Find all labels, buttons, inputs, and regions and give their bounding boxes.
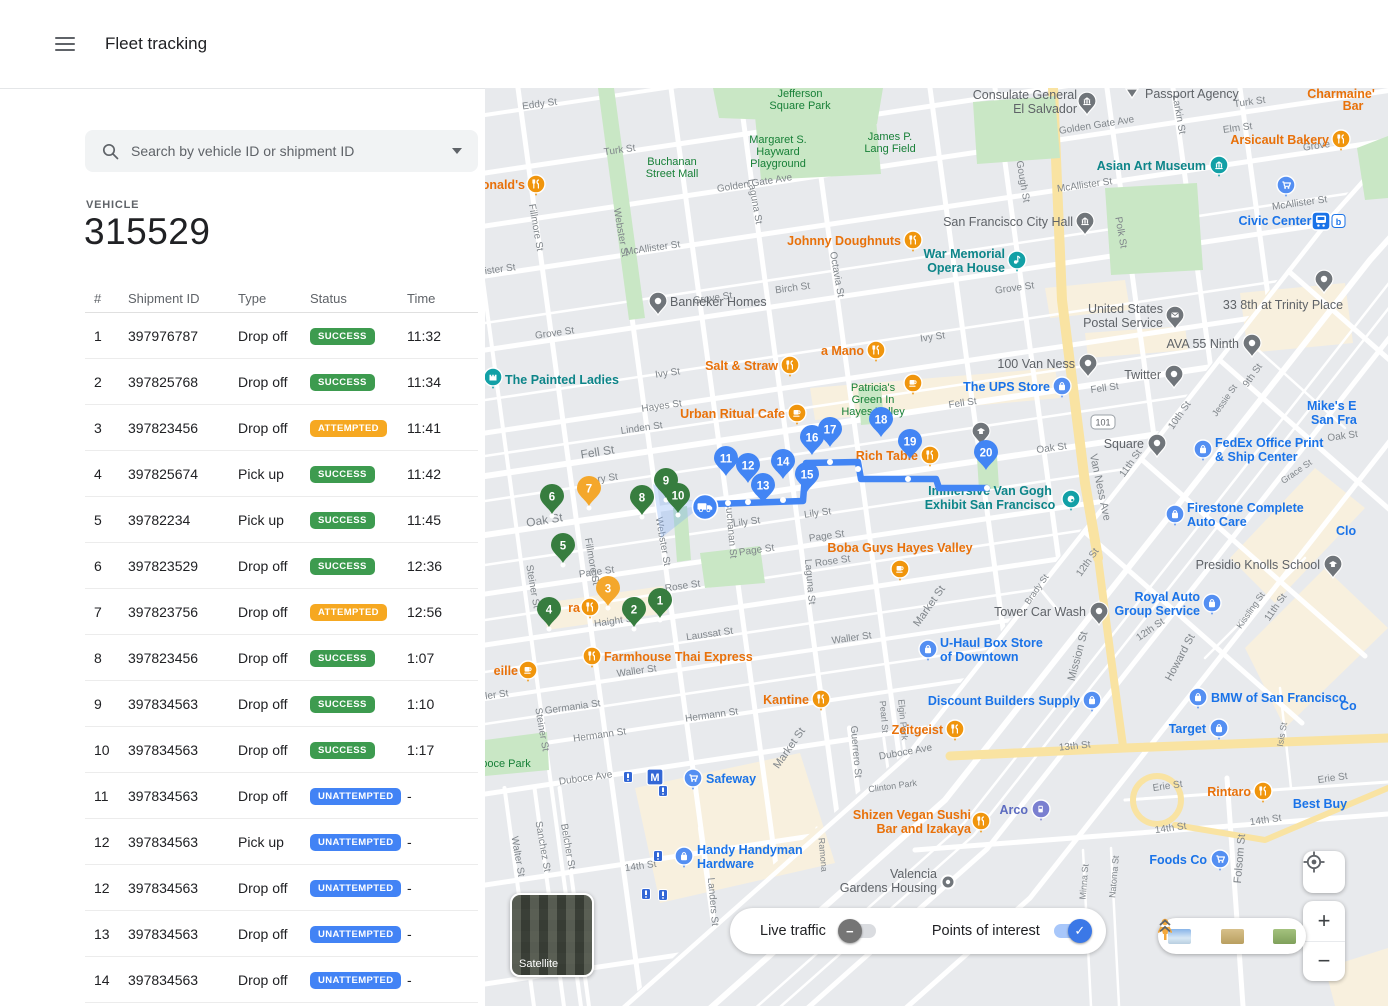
column-header: Type [238, 291, 310, 306]
svg-text:12: 12 [742, 461, 755, 473]
svg-text:3: 3 [605, 584, 611, 596]
type: Drop off [238, 972, 310, 988]
collapse-chevrons-icon[interactable] [1158, 918, 1172, 934]
poi-label: Exhibit San Francisco [925, 498, 1056, 512]
my-location-button[interactable] [1303, 851, 1345, 893]
poi-label: Asian Art Museum [1097, 159, 1206, 173]
time: 12:56 [407, 604, 478, 620]
park-label: Margaret S. [749, 134, 806, 146]
poi-label: War Memorial [923, 247, 1005, 261]
app-header: Fleet tracking [0, 0, 1388, 89]
poi-label: Rintaro [1207, 785, 1251, 799]
table-row[interactable]: 8397823456Drop offSUCCESS1:07 [85, 635, 478, 681]
chevron-down-icon[interactable] [452, 148, 462, 154]
table-row[interactable]: 12397834563Drop offUNATTEMPTED- [85, 865, 478, 911]
row-number: 3 [94, 420, 128, 436]
svg-text:M: M [650, 772, 659, 784]
row-number: 7 [94, 604, 128, 620]
shipment-id: 397825674 [128, 466, 238, 482]
type: Pick up [238, 834, 310, 850]
zoom-in-button[interactable]: + [1303, 901, 1345, 942]
park-label: Jefferson [777, 88, 822, 100]
poi-label: onald's [485, 178, 525, 192]
points-of-interest-label: Points of interest [932, 923, 1040, 939]
poi-label: FedEx Office Print [1215, 436, 1324, 450]
status: UNATTEMPTED [310, 970, 407, 990]
valencia-gardens-icon[interactable] [942, 876, 955, 889]
search-input[interactable] [129, 142, 452, 160]
svg-text:20: 20 [980, 448, 993, 460]
row-number: 14 [94, 972, 128, 988]
row-number: 12 [94, 834, 128, 850]
poi-label: El Salvador [1013, 102, 1077, 116]
svg-text:5: 5 [560, 541, 567, 553]
poi-label: Handy Handyman [697, 843, 803, 857]
svg-text:11: 11 [720, 454, 733, 466]
time: - [407, 788, 478, 804]
poi-label: San Fra [1311, 413, 1358, 427]
poi-label: Best Buy [1293, 797, 1347, 811]
type: Drop off [238, 558, 310, 574]
status-badge: SUCCESS [310, 650, 375, 668]
poi-label: & Ship Center [1215, 450, 1298, 464]
time: 1:10 [407, 696, 478, 712]
poi-label: The UPS Store [963, 380, 1050, 394]
status: UNATTEMPTED [310, 924, 407, 944]
vehicle-label: VEHICLE [86, 199, 139, 211]
status-badge: UNATTEMPTED [310, 834, 401, 852]
shipment-id: 397834563 [128, 880, 238, 896]
type: Drop off [238, 696, 310, 712]
type: Pick up [238, 466, 310, 482]
table-row[interactable]: 4397825674Pick upSUCCESS11:42 [85, 451, 478, 497]
row-number: 4 [94, 466, 128, 482]
status: ATTEMPTED [310, 602, 407, 622]
status-badge: SUCCESS [310, 558, 375, 576]
status-badge: UNATTEMPTED [310, 788, 401, 806]
table-row[interactable]: 2397825768Drop offSUCCESS11:34 [85, 359, 478, 405]
status-badge: SUCCESS [310, 466, 375, 484]
poi-label: Urban Ritual Cafe [680, 407, 785, 421]
park-label: Duboce Park [485, 758, 531, 770]
shipment-id: 397834563 [128, 696, 238, 712]
column-header: Shipment ID [128, 291, 238, 306]
svg-text:101: 101 [1095, 418, 1110, 428]
status-badge: UNATTEMPTED [310, 926, 401, 944]
svg-text:19: 19 [904, 437, 917, 449]
search-box[interactable] [85, 130, 478, 172]
table-row[interactable]: 12397834563Pick upUNATTEMPTED- [85, 819, 478, 865]
poi-label: Royal Auto [1134, 590, 1200, 604]
row-number: 5 [94, 512, 128, 528]
satellite-toggle[interactable]: Satellite [510, 893, 594, 977]
poi-label: Presidio Knolls School [1196, 558, 1320, 572]
shipment-id: 397823456 [128, 650, 238, 666]
poi-label: AVA 55 Ninth [1167, 337, 1240, 351]
zoom-control: + − [1303, 901, 1345, 981]
poi-label: Twitter [1124, 368, 1161, 382]
map-layer-bar: Live traffic − Points of interest ✓ [730, 908, 1106, 954]
poi-label: Gardens Housing [840, 881, 937, 895]
table-row[interactable]: 6397823529Drop offSUCCESS12:36 [85, 543, 478, 589]
pegman-bar [1158, 918, 1306, 954]
live-traffic-toggle[interactable]: − [840, 924, 876, 938]
civic-center-station-icon[interactable]: b [1312, 212, 1345, 230]
park-label: Lang Field [864, 143, 915, 155]
time: 11:34 [407, 374, 478, 390]
row-number: 9 [94, 696, 128, 712]
svg-text:4: 4 [546, 605, 553, 617]
row-number: 10 [94, 742, 128, 758]
search-icon [102, 143, 119, 160]
poi-label: Bar [1343, 99, 1364, 113]
shipment-id: 397976787 [128, 328, 238, 344]
transit-icon[interactable] [642, 889, 651, 900]
row-number: 12 [94, 880, 128, 896]
poi-label: Clo [1336, 524, 1357, 538]
map-graphics: Eddy StTurk StTurk StElm StGolden Gate A… [485, 88, 1388, 1006]
poi-label: Discount Builders Supply [928, 694, 1080, 708]
svg-text:b: b [1336, 217, 1342, 227]
park-label: Square Park [769, 100, 831, 112]
time: - [407, 926, 478, 942]
status-badge: SUCCESS [310, 374, 375, 392]
shipment-id: 397834563 [128, 926, 238, 942]
column-header: Status [310, 291, 407, 306]
time: 11:41 [407, 420, 478, 436]
satellite-label: Satellite [519, 958, 558, 970]
poi-label: Passport Agency [1145, 88, 1240, 101]
status: SUCCESS [310, 694, 407, 714]
zoom-out-button[interactable]: − [1303, 942, 1345, 982]
menu-icon[interactable] [55, 37, 75, 51]
shipment-table: #Shipment IDTypeStatusTime1397976787Drop… [85, 285, 478, 1003]
poi-label: U-Haul Box Store [940, 636, 1043, 650]
table-header: #Shipment IDTypeStatusTime [85, 285, 478, 313]
poi-label: Square [1104, 437, 1144, 451]
poi-label: Boba Guys Hayes Valley [827, 541, 972, 555]
poi-label: ra [568, 601, 581, 615]
table-row[interactable]: 11397834563Drop offUNATTEMPTED- [85, 773, 478, 819]
status: UNATTEMPTED [310, 832, 407, 852]
svg-text:13: 13 [757, 481, 770, 493]
poi-label: Shizen Vegan Sushi [853, 808, 971, 822]
poi-label: Charmaine' [1307, 88, 1375, 101]
status: SUCCESS [310, 510, 407, 530]
poi-label: Valencia [890, 867, 937, 881]
time: 11:45 [407, 512, 478, 528]
poi-label: Kantine [763, 693, 809, 707]
shipment-id: 397834563 [128, 834, 238, 850]
svg-text:17: 17 [824, 425, 837, 437]
status: SUCCESS [310, 326, 407, 346]
time: 11:32 [407, 328, 478, 344]
status-badge: UNATTEMPTED [310, 972, 401, 990]
status: SUCCESS [310, 648, 407, 668]
svg-text:18: 18 [875, 415, 888, 427]
poi-label: Civic Center [1239, 214, 1312, 228]
route-stop-dot [745, 499, 751, 505]
poi-label: Target [1169, 722, 1207, 736]
poi-label: Group Service [1115, 604, 1200, 618]
row-number: 8 [94, 650, 128, 666]
table-row[interactable]: 539782234Pick upSUCCESS11:45 [85, 497, 478, 543]
route-stop-dot [725, 500, 731, 506]
poi-label: Consulate General [973, 88, 1077, 102]
svg-text:8: 8 [639, 493, 646, 505]
shipment-id: 397823756 [128, 604, 238, 620]
table-row[interactable]: 3397823456Drop offATTEMPTED11:41 [85, 405, 478, 451]
transit-icon[interactable] [659, 890, 668, 901]
poi-label: Foods Co [1149, 853, 1207, 867]
poi-label: 100 Van Ness [997, 357, 1075, 371]
svg-text:14: 14 [777, 457, 790, 469]
park-label: Hayward [756, 146, 799, 158]
poi-label: Tower Car Wash [994, 605, 1086, 619]
poi-label: Postal Service [1083, 316, 1163, 330]
time: - [407, 972, 478, 988]
svg-text:2: 2 [631, 605, 637, 617]
time: 12:36 [407, 558, 478, 574]
type: Drop off [238, 788, 310, 804]
svg-text:16: 16 [806, 433, 819, 445]
park-label: Patricia's [851, 382, 896, 394]
poi-label: Hardware [697, 857, 754, 871]
time: - [407, 880, 478, 896]
park-label: Street Mall [646, 168, 699, 180]
route-stop-dot [780, 497, 786, 503]
muni-metro-icon[interactable]: M [647, 769, 663, 785]
park-label: Playground [750, 158, 806, 170]
time: - [407, 834, 478, 850]
shipment-id: 397823456 [128, 420, 238, 436]
shipment-id: 39782234 [128, 512, 238, 528]
park-label: Green In [852, 394, 895, 406]
poi-label: Salt & Straw [705, 359, 778, 373]
poi-label: Firestone Complete [1187, 501, 1304, 515]
status-badge: ATTEMPTED [310, 420, 387, 438]
status: ATTEMPTED [310, 418, 407, 438]
status-badge: SUCCESS [310, 512, 375, 530]
map-canvas[interactable]: Eddy StTurk StTurk StElm StGolden Gate A… [485, 88, 1388, 1006]
row-number: 6 [94, 558, 128, 574]
type: Pick up [238, 512, 310, 528]
table-row[interactable]: 14397834563Drop offUNATTEMPTED- [85, 957, 478, 1003]
poi-label: Zeitgeist [892, 723, 944, 737]
shipment-id: 397825768 [128, 374, 238, 390]
route-stop-dot [827, 459, 833, 465]
status: SUCCESS [310, 464, 407, 484]
shipment-id: 397834563 [128, 788, 238, 804]
time: 1:07 [407, 650, 478, 666]
svg-text:1: 1 [657, 596, 664, 608]
time: 1:17 [407, 742, 478, 758]
status: SUCCESS [310, 556, 407, 576]
status-badge: UNATTEMPTED [310, 880, 401, 898]
poi-label: Arsicault Bakery [1230, 133, 1329, 147]
row-number: 11 [94, 788, 128, 804]
svg-text:7: 7 [586, 484, 592, 496]
poi-label: Bar and Izakaya [877, 822, 973, 836]
left-panel: VEHICLE 315529 #Shipment IDTypeStatusTim… [0, 89, 485, 1006]
svg-text:6: 6 [549, 492, 555, 504]
live-traffic-label: Live traffic [760, 923, 826, 939]
transit-icon[interactable] [654, 851, 663, 862]
column-header: Time [407, 291, 478, 306]
poi-label: Safeway [706, 772, 756, 786]
type: Drop off [238, 650, 310, 666]
status: UNATTEMPTED [310, 786, 407, 806]
poi-label: of Downtown [940, 650, 1018, 664]
shipment-id: 397823529 [128, 558, 238, 574]
svg-text:9: 9 [663, 476, 669, 488]
poi-label: Arco [1000, 803, 1029, 817]
status-badge: SUCCESS [310, 696, 375, 714]
type: Drop off [238, 374, 310, 390]
park-label: Buchanan [647, 156, 697, 168]
status: SUCCESS [310, 372, 407, 392]
table-row[interactable]: 13397834563Drop offUNATTEMPTED- [85, 911, 478, 957]
row-number: 13 [94, 926, 128, 942]
transit-icon[interactable] [659, 786, 668, 797]
poi-label: Mike's E [1307, 399, 1357, 413]
svg-text:10: 10 [672, 491, 685, 503]
route-stop-dot [855, 466, 861, 472]
route-stop-dot [984, 485, 990, 491]
status-badge: SUCCESS [310, 742, 375, 760]
status: SUCCESS [310, 740, 407, 760]
table-row[interactable]: 10397834563Drop offSUCCESS1:17 [85, 727, 478, 773]
svg-text:15: 15 [801, 470, 814, 482]
type: Drop off [238, 742, 310, 758]
poi-label: Johnny Doughnuts [787, 234, 901, 248]
poi-label: Opera House [927, 261, 1005, 275]
table-row[interactable]: 9397834563Drop offSUCCESS1:10 [85, 681, 478, 727]
status: UNATTEMPTED [310, 878, 407, 898]
route-stop-dot [905, 476, 911, 482]
type: Drop off [238, 880, 310, 896]
shipment-id: 397834563 [128, 742, 238, 758]
type: Drop off [238, 328, 310, 344]
shipment-id: 397834563 [128, 972, 238, 988]
vehicle-id: 315529 [84, 211, 210, 253]
type: Drop off [238, 420, 310, 436]
poi-label: Farmhouse Thai Express [604, 650, 753, 664]
status-badge: SUCCESS [310, 328, 375, 346]
imagery-thumbnail-field[interactable] [1221, 929, 1244, 944]
page-title: Fleet tracking [105, 34, 207, 54]
poi-label: Auto Care [1187, 515, 1247, 529]
poi-label: San Francisco City Hall [943, 215, 1073, 229]
status-badge: ATTEMPTED [310, 604, 387, 622]
time: 11:42 [407, 466, 478, 482]
park-label: James P. [868, 131, 912, 143]
poi-label: 33 8th at Trinity Place [1223, 298, 1343, 312]
poi-label: a Mano [821, 344, 864, 358]
transit-icon[interactable] [624, 772, 633, 783]
type: Drop off [238, 926, 310, 942]
type: Drop off [238, 604, 310, 620]
poi-label: United States [1088, 302, 1163, 316]
column-header: # [94, 291, 128, 306]
table-row[interactable]: 7397823756Drop offATTEMPTED12:56 [85, 589, 478, 635]
poi-label: eille [494, 664, 518, 678]
poi-label: Banneker Homes [670, 295, 767, 309]
imagery-thumbnail-hills[interactable] [1273, 929, 1296, 944]
poi-label: Co [1340, 699, 1357, 713]
poi-label: The Painted Ladies [505, 373, 619, 387]
route-101-shield: 101 [1091, 415, 1115, 429]
row-number: 2 [94, 374, 128, 390]
points-of-interest-toggle[interactable]: ✓ [1054, 924, 1090, 938]
row-number: 1 [94, 328, 128, 344]
table-row[interactable]: 1397976787Drop offSUCCESS11:32 [85, 313, 478, 359]
crosshair-icon [1303, 851, 1325, 873]
poi-label: BMW of San Francisco [1211, 691, 1347, 705]
